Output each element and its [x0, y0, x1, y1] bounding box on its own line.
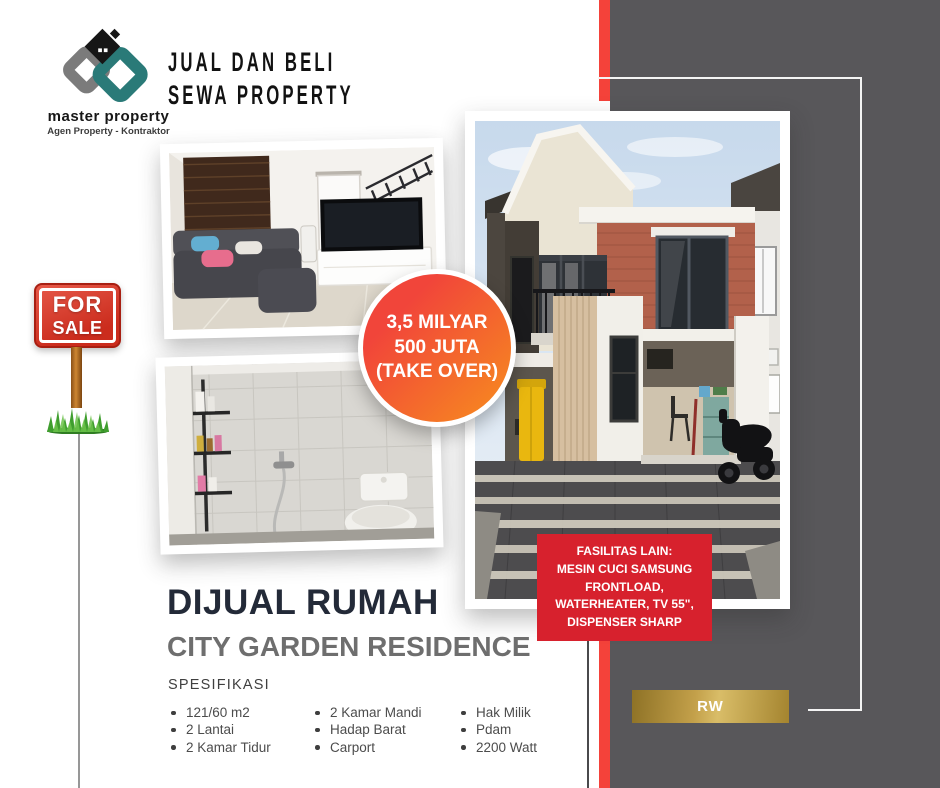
grass-icon — [45, 404, 111, 434]
spec-list-col3: Hak Milik Pdam 2200 Watt — [460, 704, 537, 756]
spec-item: 2 Kamar Tidur — [170, 739, 271, 756]
title-line-2: SEWA PROPERTY — [168, 79, 354, 112]
red-stripe-bottom — [599, 641, 610, 788]
spec-item: Pdam — [460, 721, 537, 738]
spec-list-col2: 2 Kamar Mandi Hadap Barat Carport — [314, 704, 422, 756]
facilities-line-1: FASILITAS LAIN: — [537, 543, 712, 561]
frame-line-right — [860, 77, 862, 711]
spec-item: 2 Kamar Mandi — [314, 704, 422, 721]
spec-item: Hadap Barat — [314, 721, 422, 738]
facilities-line-2: MESIN CUCI SAMSUNG — [537, 561, 712, 579]
thin-dark-line — [587, 641, 589, 788]
for-sale-sign-board: FOR SALE — [39, 288, 116, 343]
property-flyer: master property Agen Property - Kontrakt… — [0, 0, 940, 788]
red-stripe-top — [599, 0, 610, 101]
for-sale-line1: FOR — [53, 294, 102, 316]
master-property-logo-icon — [50, 26, 166, 110]
rw-badge: RW — [632, 690, 789, 723]
brand-tagline: Agen Property - Kontraktor — [36, 126, 181, 137]
sign-stake-line — [78, 432, 80, 788]
brand-name: master property — [36, 108, 181, 125]
frame-line-foot — [808, 709, 862, 711]
page-title: JUAL DAN BELI SEWA PROPERTY — [168, 46, 468, 112]
frame-line-top — [598, 77, 862, 79]
spec-list-col1: 121/60 m2 2 Lantai 2 Kamar Tidur — [170, 704, 271, 756]
listing-title: DIJUAL RUMAH — [167, 583, 439, 623]
for-sale-line2: SALE — [52, 319, 102, 337]
facilities-line-3: FRONTLOAD, — [537, 579, 712, 597]
spec-item: Hak Milik — [460, 704, 537, 721]
spec-item: Carport — [314, 739, 422, 756]
title-line-1: JUAL DAN BELI — [168, 46, 354, 79]
facilities-line-4: WATERHEATER, TV 55", — [537, 596, 712, 614]
for-sale-sign: FOR SALE — [34, 283, 121, 348]
price-line-3: (TAKE OVER) — [376, 360, 498, 385]
facilities-line-5: DISPENSER SHARP — [537, 614, 712, 632]
facilities-box: FASILITAS LAIN: MESIN CUCI SAMSUNG FRONT… — [537, 534, 712, 641]
listing-subtitle: CITY GARDEN RESIDENCE — [167, 631, 531, 663]
sign-post — [71, 347, 82, 408]
spec-heading: SPESIFIKASI — [168, 677, 270, 693]
spec-item: 2 Lantai — [170, 721, 271, 738]
price-badge: 3,5 MILYAR 500 JUTA (TAKE OVER) — [358, 269, 516, 427]
spec-item: 2200 Watt — [460, 739, 537, 756]
spec-item: 121/60 m2 — [170, 704, 271, 721]
price-line-1: 3,5 MILYAR — [386, 311, 487, 336]
price-line-2: 500 JUTA — [394, 336, 479, 361]
